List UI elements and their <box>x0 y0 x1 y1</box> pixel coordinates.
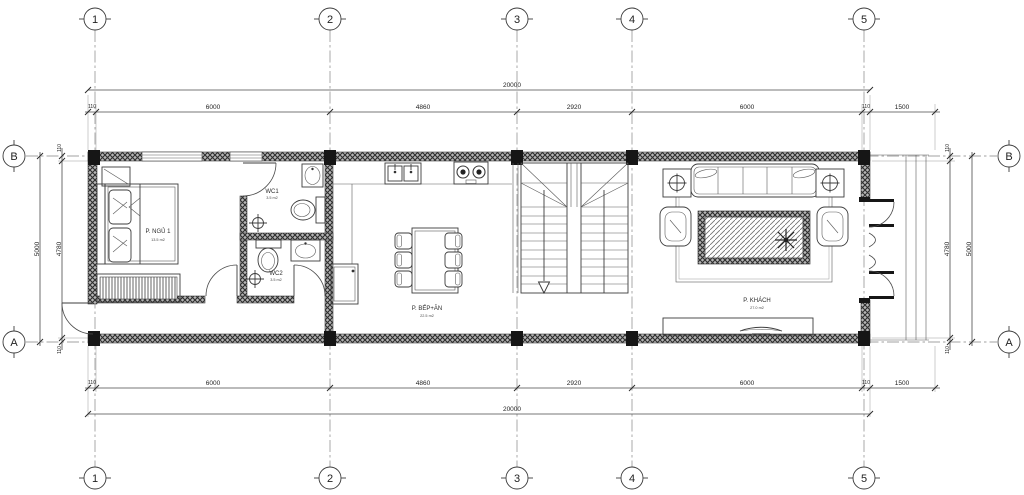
window-bedroom <box>142 152 202 161</box>
dim-total-top: 20000 <box>503 82 521 89</box>
dim-side-total: 5000 <box>34 241 41 256</box>
svg-text:3: 3 <box>514 14 520 26</box>
pillow <box>109 228 131 262</box>
wall-top <box>88 152 870 161</box>
dim-seg: 110 <box>88 380 96 386</box>
room-label-kitchen: P. BẾP+ĂN <box>412 305 442 312</box>
wall-wc2-south <box>237 296 294 303</box>
column <box>626 331 638 346</box>
paper-background <box>0 0 1024 495</box>
floor-plan-drawing: 20000 110 6000 4860 2920 6000 110 1500 1… <box>0 0 1024 495</box>
room-area-kitchen: 22.5 m2 <box>420 314 434 318</box>
plant-symbol <box>775 229 797 251</box>
wall-wc-east <box>325 161 333 334</box>
svg-text:2: 2 <box>327 14 333 26</box>
svg-text:2: 2 <box>327 473 333 485</box>
dim-seg: 2920 <box>567 104 582 111</box>
dim-side-edge: 110 <box>57 144 63 152</box>
sofa <box>691 164 819 197</box>
dim-seg: 110 <box>862 104 870 110</box>
room-label-wc1: WC1 <box>265 189 279 195</box>
dim-side-edge: 110 <box>945 346 951 354</box>
wall-end-cap <box>859 197 870 202</box>
room-area-wc1: 3.5 m2 <box>266 196 278 200</box>
svg-text:4: 4 <box>629 14 635 26</box>
wall-bedroom-wc <box>240 196 247 300</box>
room-label-wc2: WC2 <box>269 271 283 277</box>
dim-seg: 6000 <box>740 380 755 387</box>
svg-text:A: A <box>1005 337 1013 349</box>
dim-side-total: 5000 <box>966 241 973 256</box>
dim-seg: 110 <box>862 380 870 386</box>
dim-seg: 6000 <box>206 380 221 387</box>
dim-seg: 2920 <box>567 380 582 387</box>
rug <box>698 211 810 264</box>
column <box>858 150 870 165</box>
pillow <box>109 190 131 224</box>
room-area-bedroom: 13.5 m2 <box>151 238 165 242</box>
dim-side-edge: 110 <box>945 144 951 152</box>
dim-seg: 4860 <box>416 380 431 387</box>
svg-text:A: A <box>10 337 18 349</box>
wall-left <box>88 152 97 304</box>
dim-side-inner: 4780 <box>56 241 63 256</box>
dim-seg: 110 <box>88 104 96 110</box>
column <box>324 331 336 346</box>
dim-side-inner: 4780 <box>944 241 951 256</box>
dim-seg: 4860 <box>416 104 431 111</box>
floor-plan-page: 20000 110 6000 4860 2920 6000 110 1500 1… <box>0 0 1024 495</box>
dim-total-bottom: 20000 <box>503 406 521 413</box>
wall-end-cap <box>859 298 870 303</box>
window-wc1 <box>230 152 262 161</box>
dim-seg: 1500 <box>895 104 910 111</box>
column <box>88 331 100 346</box>
svg-text:1: 1 <box>92 14 98 26</box>
armchair-left <box>660 207 691 246</box>
side-table-lamp-right <box>816 169 844 197</box>
column <box>858 331 870 346</box>
svg-text:B: B <box>1005 151 1012 163</box>
room-label-bedroom: P. NGỦ 1 <box>146 228 172 235</box>
svg-text:5: 5 <box>861 473 867 485</box>
wardrobe <box>97 274 180 302</box>
svg-text:3: 3 <box>514 473 520 485</box>
svg-text:1: 1 <box>92 473 98 485</box>
wall-wc1-wc2 <box>240 233 333 240</box>
svg-text:4: 4 <box>629 473 635 485</box>
svg-text:B: B <box>10 151 17 163</box>
column <box>511 331 523 346</box>
room-area-living: 27.0 m2 <box>750 306 764 310</box>
dim-seg: 6000 <box>206 104 221 111</box>
side-table-lamp-left <box>663 169 691 197</box>
column <box>324 150 336 165</box>
column <box>88 150 100 165</box>
room-label-living: P. KHÁCH <box>743 297 771 304</box>
dim-seg: 1500 <box>895 380 910 387</box>
room-area-wc2: 3.5 m2 <box>270 278 282 282</box>
armchair-right <box>817 207 848 246</box>
svg-text:5: 5 <box>861 14 867 26</box>
dim-seg: 6000 <box>740 104 755 111</box>
dim-side-edge: 110 <box>57 346 63 354</box>
